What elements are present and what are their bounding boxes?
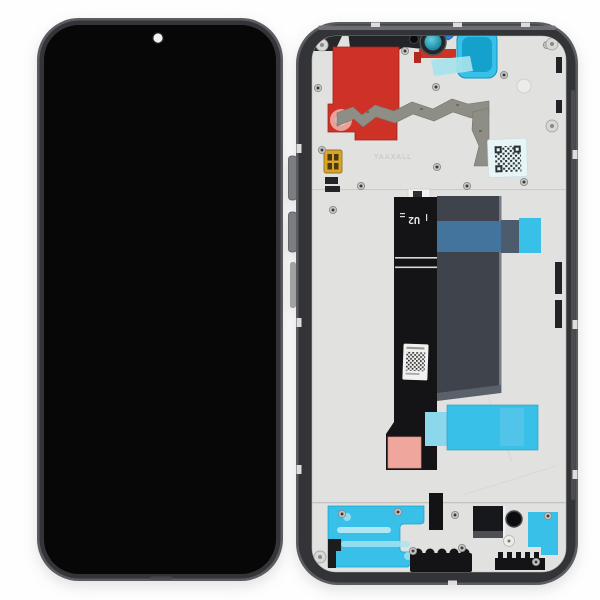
flex-qr-label — [402, 344, 428, 381]
flex-label: U2 — [408, 214, 420, 225]
top-rail-highlight — [318, 26, 556, 31]
slate-tape-square — [501, 220, 519, 253]
qr-code-sticker — [487, 138, 527, 177]
cyan-tape-light-edge — [425, 412, 447, 446]
watermark: YAAXALL — [373, 153, 412, 161]
plate-seam-top — [312, 189, 566, 190]
product-photo: YAAXALL U2 — [0, 0, 600, 600]
qr-code — [406, 352, 426, 372]
front-display-assembly — [37, 18, 283, 581]
back-frame-assembly: YAAXALL U2 — [289, 16, 579, 585]
phone-parts-photo: YAAXALL U2 — [0, 0, 600, 600]
embossed-circle — [517, 79, 531, 93]
front-camera-lens — [425, 34, 442, 51]
cyan-tape-square — [519, 218, 541, 253]
front-screen — [44, 25, 276, 574]
black-tab — [429, 493, 443, 530]
microphone-hole — [506, 511, 522, 527]
steel-blue-tape — [437, 221, 501, 252]
rail-segment — [290, 262, 296, 308]
power-button — [289, 212, 297, 252]
pink-foam-pad — [388, 437, 421, 468]
flex-white-line — [395, 257, 437, 259]
bottom-antenna-line — [150, 577, 172, 581]
punch-hole-camera — [153, 33, 162, 42]
flex-white-line — [395, 267, 437, 269]
side-buttons — [289, 156, 297, 308]
bottom-connector-comb — [410, 549, 472, 573]
red-strip-end — [414, 52, 421, 63]
volume-button — [289, 156, 297, 200]
